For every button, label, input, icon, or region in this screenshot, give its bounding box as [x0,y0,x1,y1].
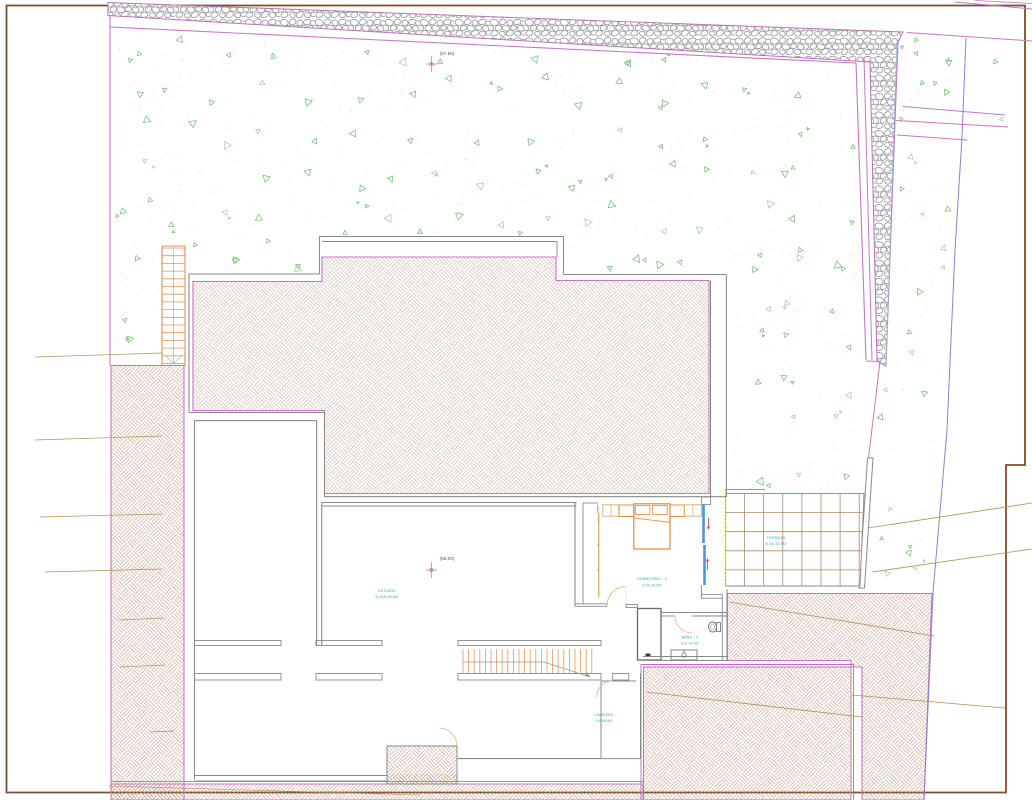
svg-text:(67.50): (67.50) [440,51,455,56]
svg-text:S:31.40 M2: S:31.40 M2 [766,542,787,546]
svg-text:DORMITORIO - 4: DORMITORIO - 4 [637,577,667,581]
svg-text:S:6.19 M2: S:6.19 M2 [681,642,699,646]
svg-text:(66.00): (66.00) [440,556,455,561]
svg-text:BAÑO - 4: BAÑO - 4 [682,635,699,640]
svg-text:TERRAZA: TERRAZA [767,536,786,540]
svg-text:S:23.36 M2: S:23.36 M2 [642,584,661,588]
svg-text:S:105.49 M2: S:105.49 M2 [375,595,398,599]
svg-text:LAVADERO: LAVADERO [594,713,613,717]
svg-text:S:6.56 M2: S:6.56 M2 [596,719,613,723]
svg-text:ESTUDIO: ESTUDIO [378,589,396,593]
